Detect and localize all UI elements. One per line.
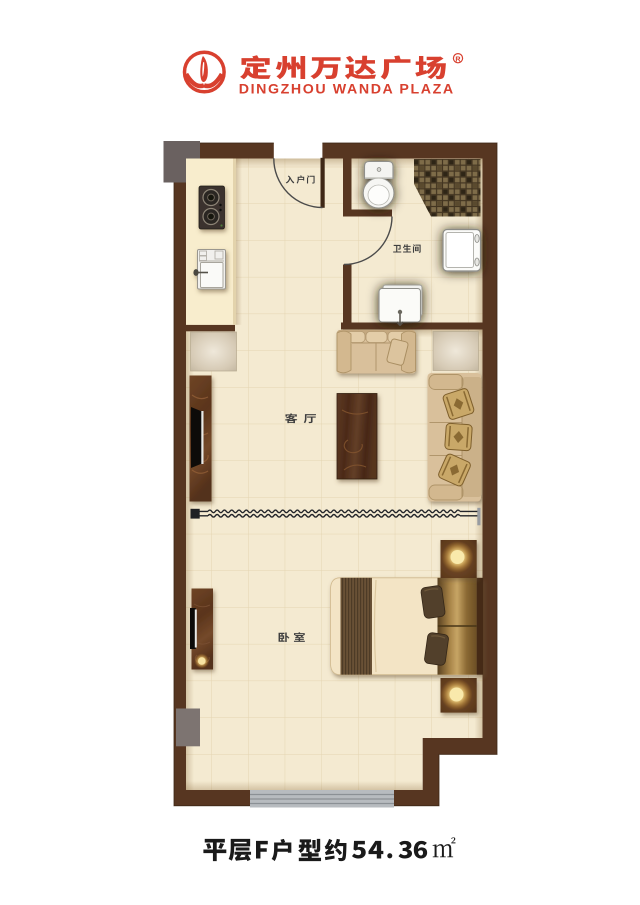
svg-text:DINGZHOU WANDA PLAZA: DINGZHOU WANDA PLAZA bbox=[239, 82, 455, 98]
svg-text:R: R bbox=[455, 54, 461, 63]
